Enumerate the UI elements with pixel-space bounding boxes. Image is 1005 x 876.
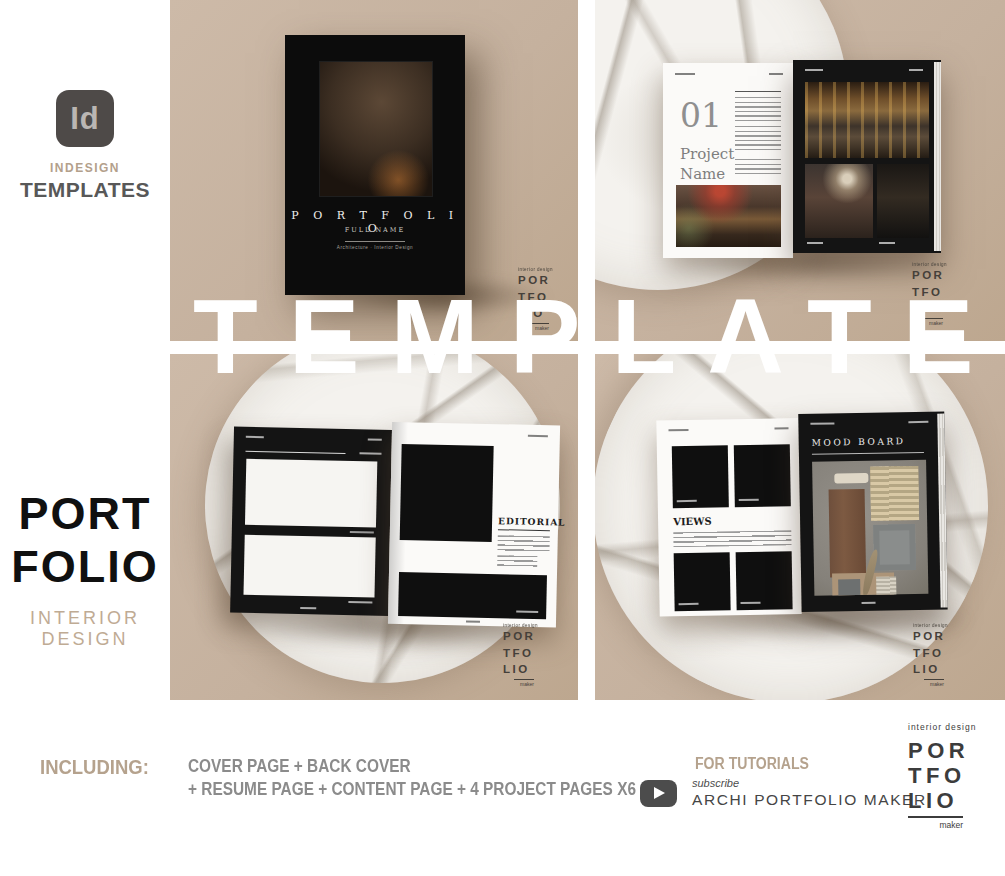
views-spread: VIEWS MOOD BOARD xyxy=(656,411,949,618)
channel-name: ARCHI PORTFOLIO MAKER xyxy=(692,791,927,809)
mood-right-page: MOOD BOARD xyxy=(798,412,947,613)
project-title-line2: Name xyxy=(680,165,725,183)
heading-rule xyxy=(498,529,550,531)
youtube-play-icon xyxy=(640,780,677,807)
views-left-page: VIEWS xyxy=(656,418,801,616)
panel-editorial-spread: EDITORIAL interior design POR TFO LIO ma… xyxy=(170,354,578,700)
editorial-left-page xyxy=(230,427,392,616)
promo-canvas: P O R T F O L I O FULL NAME Architecture… xyxy=(0,0,1005,876)
brand-logo: interior design POR TFO LIO maker xyxy=(908,722,978,830)
mini-brand-logo: interior design POR TFO LIO maker xyxy=(913,622,953,687)
brand-logo-underline xyxy=(908,816,963,818)
portfolio-title-line2: FOLIO xyxy=(0,540,170,593)
mini-brand-underline xyxy=(514,679,534,680)
project-number: 01 xyxy=(680,96,722,135)
text-placeholder xyxy=(735,97,781,121)
heading-rule xyxy=(812,452,924,455)
image-block xyxy=(400,444,494,542)
project-right-page xyxy=(793,60,941,253)
text-placeholder xyxy=(735,126,781,154)
templates-label: TEMPLATES xyxy=(0,178,170,202)
project-left-page: 01 Project Name xyxy=(663,63,793,258)
project-title-line1: Project xyxy=(680,145,734,163)
text-placeholder xyxy=(497,555,537,568)
brand-logo-botline: maker xyxy=(908,820,963,830)
editorial-heading: EDITORIAL xyxy=(498,516,566,527)
rattan-grid xyxy=(870,466,919,521)
mini-brand-topline: interior design xyxy=(518,266,554,271)
cover-tagline: Architecture · Interior Design xyxy=(285,245,465,250)
brand-logo-row1: POR xyxy=(908,738,978,763)
small-gray-sample xyxy=(838,579,860,596)
mini-brand-row1: POR xyxy=(913,628,953,645)
rule xyxy=(245,451,345,454)
wood-plank xyxy=(829,489,867,578)
text-placeholder xyxy=(673,530,791,547)
text-placeholder xyxy=(497,535,549,552)
panel-moodboard-spread: VIEWS MOOD BOARD xyxy=(595,354,1005,700)
mini-brand-row2: TFO xyxy=(503,645,543,662)
tile-sample xyxy=(876,576,896,595)
mini-brand-topline: interior design xyxy=(503,622,539,627)
mini-brand-row1: POR xyxy=(503,628,543,645)
editorial-right-page: EDITORIAL xyxy=(388,422,560,627)
image-block xyxy=(734,444,791,507)
cover-divider xyxy=(345,241,405,242)
tutorials-label: FOR TUTORIALS xyxy=(695,755,809,773)
image-placeholder xyxy=(245,459,377,528)
cover-subtitle: FULL NAME xyxy=(285,226,465,234)
moodboard-photo xyxy=(812,460,928,596)
including-label: INCLUDING: xyxy=(40,755,149,779)
indesign-label: INDESIGN xyxy=(0,161,170,175)
play-triangle-icon xyxy=(654,787,665,799)
mini-brand-row2: TFO xyxy=(913,645,953,662)
column-rule xyxy=(735,91,781,92)
interior-design-subtitle: INTERIOR DESIGN xyxy=(0,608,170,650)
portfolio-title: PORT FOLIO xyxy=(0,487,170,593)
indesign-app-icon: Id xyxy=(56,90,114,147)
mini-brand-topline: interior design xyxy=(913,622,949,627)
indesign-badge-block: Id INDESIGN TEMPLATES xyxy=(0,90,170,202)
features-line2: + RESUME PAGE + CONTENT PAGE + 4 PROJECT… xyxy=(188,778,636,801)
subscribe-label: subscribe xyxy=(692,777,739,789)
mini-brand-underline xyxy=(924,679,944,680)
portfolio-title-line1: PORT xyxy=(0,487,170,540)
gray-sample xyxy=(873,524,916,571)
mini-brand-row3: LIO xyxy=(503,661,543,678)
mini-brand-logo: interior design POR TFO LIO maker xyxy=(503,622,543,687)
image-placeholder xyxy=(244,535,376,598)
brand-logo-row3: LIO xyxy=(908,788,978,813)
white-sample xyxy=(834,473,868,484)
text-placeholder xyxy=(735,159,781,177)
features-line1: COVER PAGE + BACK COVER xyxy=(188,755,636,778)
restaurant-photo xyxy=(676,185,781,247)
kitchen-photo xyxy=(877,164,929,238)
mini-brand-botline: maker xyxy=(913,681,944,687)
portfolio-cover-book: P O R T F O L I O FULL NAME Architecture… xyxy=(285,35,465,295)
brand-logo-topline: interior design xyxy=(908,722,978,732)
moodboard-heading: MOOD BOARD xyxy=(812,436,906,448)
views-heading: VIEWS xyxy=(673,516,712,528)
mini-brand-botline: maker xyxy=(503,681,534,687)
features-list: COVER PAGE + BACK COVER + RESUME PAGE + … xyxy=(188,755,697,800)
image-block xyxy=(672,445,729,508)
mini-brand-row3: LIO xyxy=(913,661,953,678)
dining-photo xyxy=(805,164,873,238)
templates-overlay-title: TEMPLATES xyxy=(193,283,1005,389)
bar-photo xyxy=(805,82,929,158)
mini-brand-topline: interior design xyxy=(912,261,948,266)
brand-logo-row2: TFO xyxy=(908,763,978,788)
editorial-spread: EDITORIAL xyxy=(230,419,560,632)
cover-photo xyxy=(320,62,432,196)
